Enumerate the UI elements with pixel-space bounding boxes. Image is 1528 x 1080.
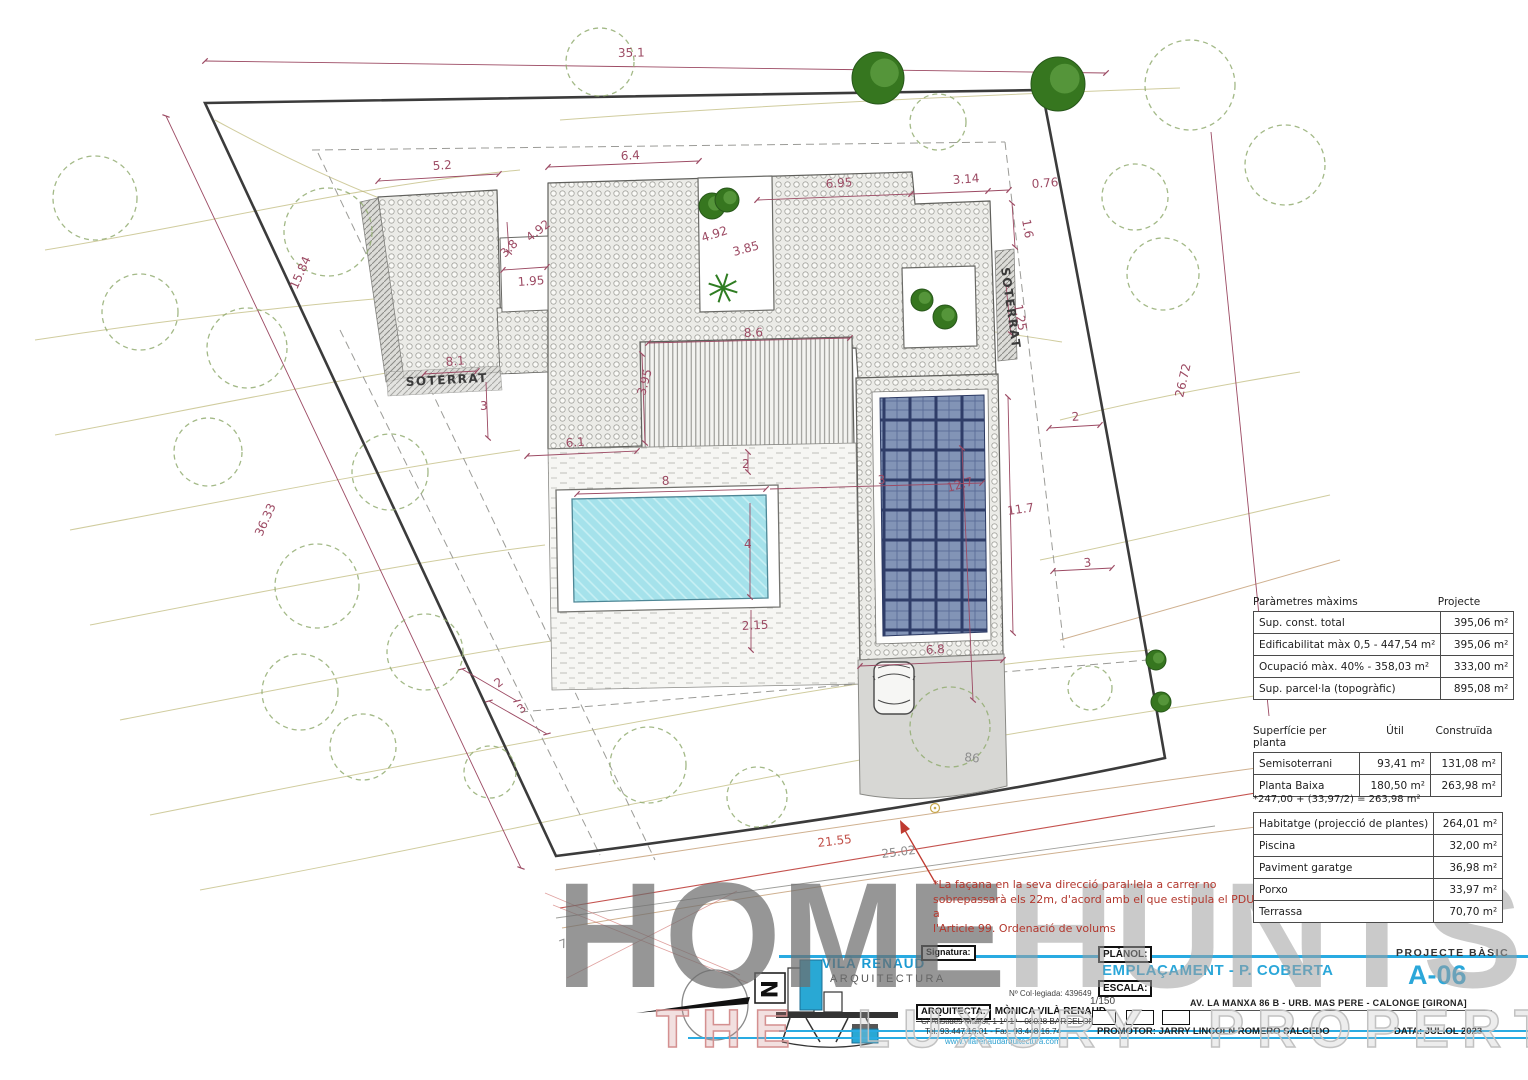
table-cell: 395,06 m² <box>1441 634 1514 656</box>
table-row: Piscina32,00 m² <box>1254 835 1503 857</box>
note-line: l'Article 99. Ordenació de volums <box>933 922 1263 937</box>
legend-box <box>1126 1010 1154 1025</box>
table-cell: 70,70 m² <box>1434 901 1503 923</box>
project-type: PROJECTE BÀSIC <box>1396 947 1509 959</box>
legend-box <box>1092 1010 1116 1025</box>
table-header: Paràmetres màxims <box>1253 596 1423 608</box>
table-cell: 264,01 m² <box>1434 813 1503 835</box>
escala-label: ESCALA: <box>1098 980 1152 997</box>
sheet-title: EMPLAÇAMENT - P. COBERTA <box>1102 962 1333 979</box>
planol-label: PLÀNOL: <box>1098 946 1152 963</box>
table-cell: 895,08 m² <box>1441 678 1514 700</box>
table-header: Superfície per planta <box>1253 725 1360 749</box>
site-address: AV. LA MANXA 86 B - URB. MAS PERE - CALO… <box>1190 998 1492 1011</box>
plan-sheet: 35.136.3315.8426.725.26.46.953.140.761.6… <box>0 0 1528 1080</box>
scale-value: 1/150 <box>1090 996 1115 1007</box>
firm-phone: Tel. 93.447.16.01 - Fax. 93.448.16.74 <box>925 1027 1061 1036</box>
note-line: sobrepassarà els 22m, d'acord amb el que… <box>933 893 1263 922</box>
table-cell: 33,97 m² <box>1434 879 1503 901</box>
architect-name: MÒNICA VILÀ RENAUD <box>995 1006 1106 1017</box>
table-cell: Habitatge (projecció de plantes) <box>1254 813 1434 835</box>
table-cell: Sup. const. total <box>1254 612 1441 634</box>
table-row: Porxo33,97 m² <box>1254 879 1503 901</box>
table-row: Edificabilitat màx 0,5 - 447,54 m²395,06… <box>1254 634 1514 656</box>
table-row: Habitatge (projecció de plantes)264,01 m… <box>1254 813 1503 835</box>
sheet-number: A-06 <box>1408 960 1467 991</box>
table-cell: 36,98 m² <box>1434 857 1503 879</box>
table-cell: Ocupació màx. 40% - 358,03 m² <box>1254 656 1441 678</box>
table-cell: Porxo <box>1254 879 1434 901</box>
table-cell: 333,00 m² <box>1441 656 1514 678</box>
table-cell: Piscina <box>1254 835 1434 857</box>
table-row: Sup. parcel·la (topogràfic)895,08 m² <box>1254 678 1514 700</box>
firm-name: VILÀ RENAUD <box>822 956 925 971</box>
table-header: Útil <box>1360 725 1430 749</box>
table-cell: 131,08 m² <box>1431 753 1502 775</box>
signature-label: Signatura: <box>921 945 976 961</box>
legend-box <box>1162 1010 1190 1025</box>
table-note: *247,00 + (33,97/2) = 263,98 m² <box>1253 794 1421 805</box>
table-row: Paviment garatge36,98 m² <box>1254 857 1503 879</box>
table-cell: Paviment garatge <box>1254 857 1434 879</box>
facade-annotation: *La façana en la seva direcció paral·lel… <box>933 878 1263 936</box>
table-cell: Semisoterrani <box>1254 753 1360 775</box>
table-row: Sup. const. total395,06 m² <box>1254 612 1514 634</box>
table-row: Ocupació màx. 40% - 358,03 m²333,00 m² <box>1254 656 1514 678</box>
titleblock-rule-bottom2 <box>688 1037 1528 1039</box>
table-superficie: Superfície per planta Útil Construïda Se… <box>1253 725 1502 797</box>
table-cell: 395,06 m² <box>1441 612 1514 634</box>
table-cell: 32,00 m² <box>1434 835 1503 857</box>
date: DATA: JULIOL 2023 <box>1394 1026 1482 1037</box>
table-header: Construïda <box>1430 725 1498 749</box>
table-exterior: Habitatge (projecció de plantes)264,01 m… <box>1253 812 1503 923</box>
promotor: PROMOTOR: JARRY LINCOLN ROMERO SALCEDO <box>1097 1026 1330 1037</box>
table-cell: Terrassa <box>1254 901 1434 923</box>
table-row: Terrassa70,70 m² <box>1254 901 1503 923</box>
table-cell: Edificabilitat màx 0,5 - 447,54 m² <box>1254 634 1441 656</box>
table-row: Semisoterrani93,41 m²131,08 m² <box>1254 753 1502 775</box>
table-cell: Sup. parcel·la (topogràfic) <box>1254 678 1441 700</box>
firm-website: www.vilarenaudarquitectura.com <box>945 1037 1061 1046</box>
collegiate-number: Nº Col·legiada: 439649 <box>1009 989 1092 998</box>
firm-subtitle: ARQUITECTURA <box>830 973 946 985</box>
table-header: Projecte <box>1423 596 1495 608</box>
table-parametres: Paràmetres màxims Projecte Sup. const. t… <box>1253 596 1514 700</box>
note-line: *La façana en la seva direcció paral·lel… <box>933 878 1263 893</box>
firm-address: C/ Aristides Maillol, 1 1º-1ª - 08028 BA… <box>921 1017 1100 1026</box>
table-cell: 93,41 m² <box>1360 753 1431 775</box>
table-cell: 263,98 m² <box>1431 775 1502 797</box>
